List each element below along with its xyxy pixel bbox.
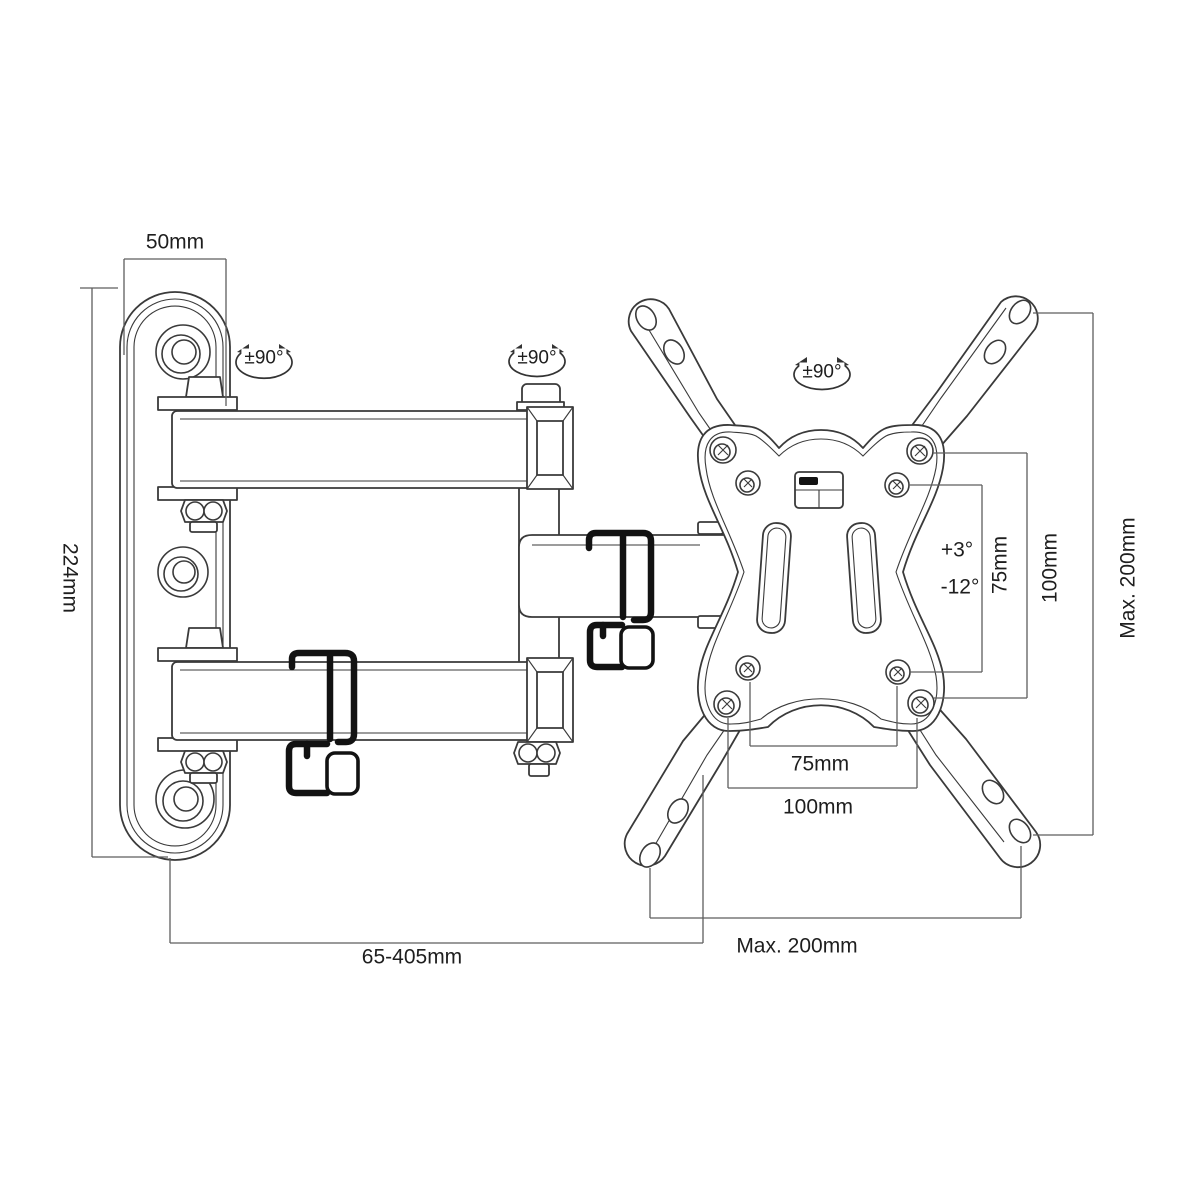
- dim-label-extension-range: 65-405mm: [362, 947, 462, 968]
- dim-max200-horizontal: [650, 846, 1021, 918]
- dim-label-vesa-100-horizontal: 100mm: [783, 797, 853, 818]
- tilt-up-label: +3°: [941, 540, 973, 561]
- swivel-label-right: ±90°: [799, 363, 844, 382]
- dim-label-wall-plate-height: 224mm: [60, 543, 81, 613]
- dim-extension: [170, 775, 703, 943]
- dim-label-max200-vertical: Max. 200mm: [1118, 517, 1139, 638]
- extension-bar: [519, 522, 740, 628]
- blueprint-canvas: 50mm 224mm ±90° ±90° ±90° +3° -12° 75mm …: [0, 0, 1200, 1200]
- cable-clip: [327, 753, 358, 794]
- cable-clip: [621, 627, 653, 668]
- dim-label-max200-horizontal: Max. 200mm: [736, 936, 857, 957]
- dim-label-wall-plate-width: 50mm: [146, 232, 204, 253]
- swivel-label-left: ±90°: [241, 349, 286, 368]
- technical-drawing: [0, 0, 1200, 1200]
- lower-arm: [172, 658, 573, 776]
- tilt-down-label: -12°: [941, 577, 980, 598]
- dim-label-vesa-75-vertical: 75mm: [990, 536, 1011, 594]
- dim-label-vesa-100-vertical: 100mm: [1040, 533, 1061, 603]
- swivel-label-middle: ±90°: [514, 349, 559, 368]
- dim-label-vesa-75-horizontal: 75mm: [791, 754, 849, 775]
